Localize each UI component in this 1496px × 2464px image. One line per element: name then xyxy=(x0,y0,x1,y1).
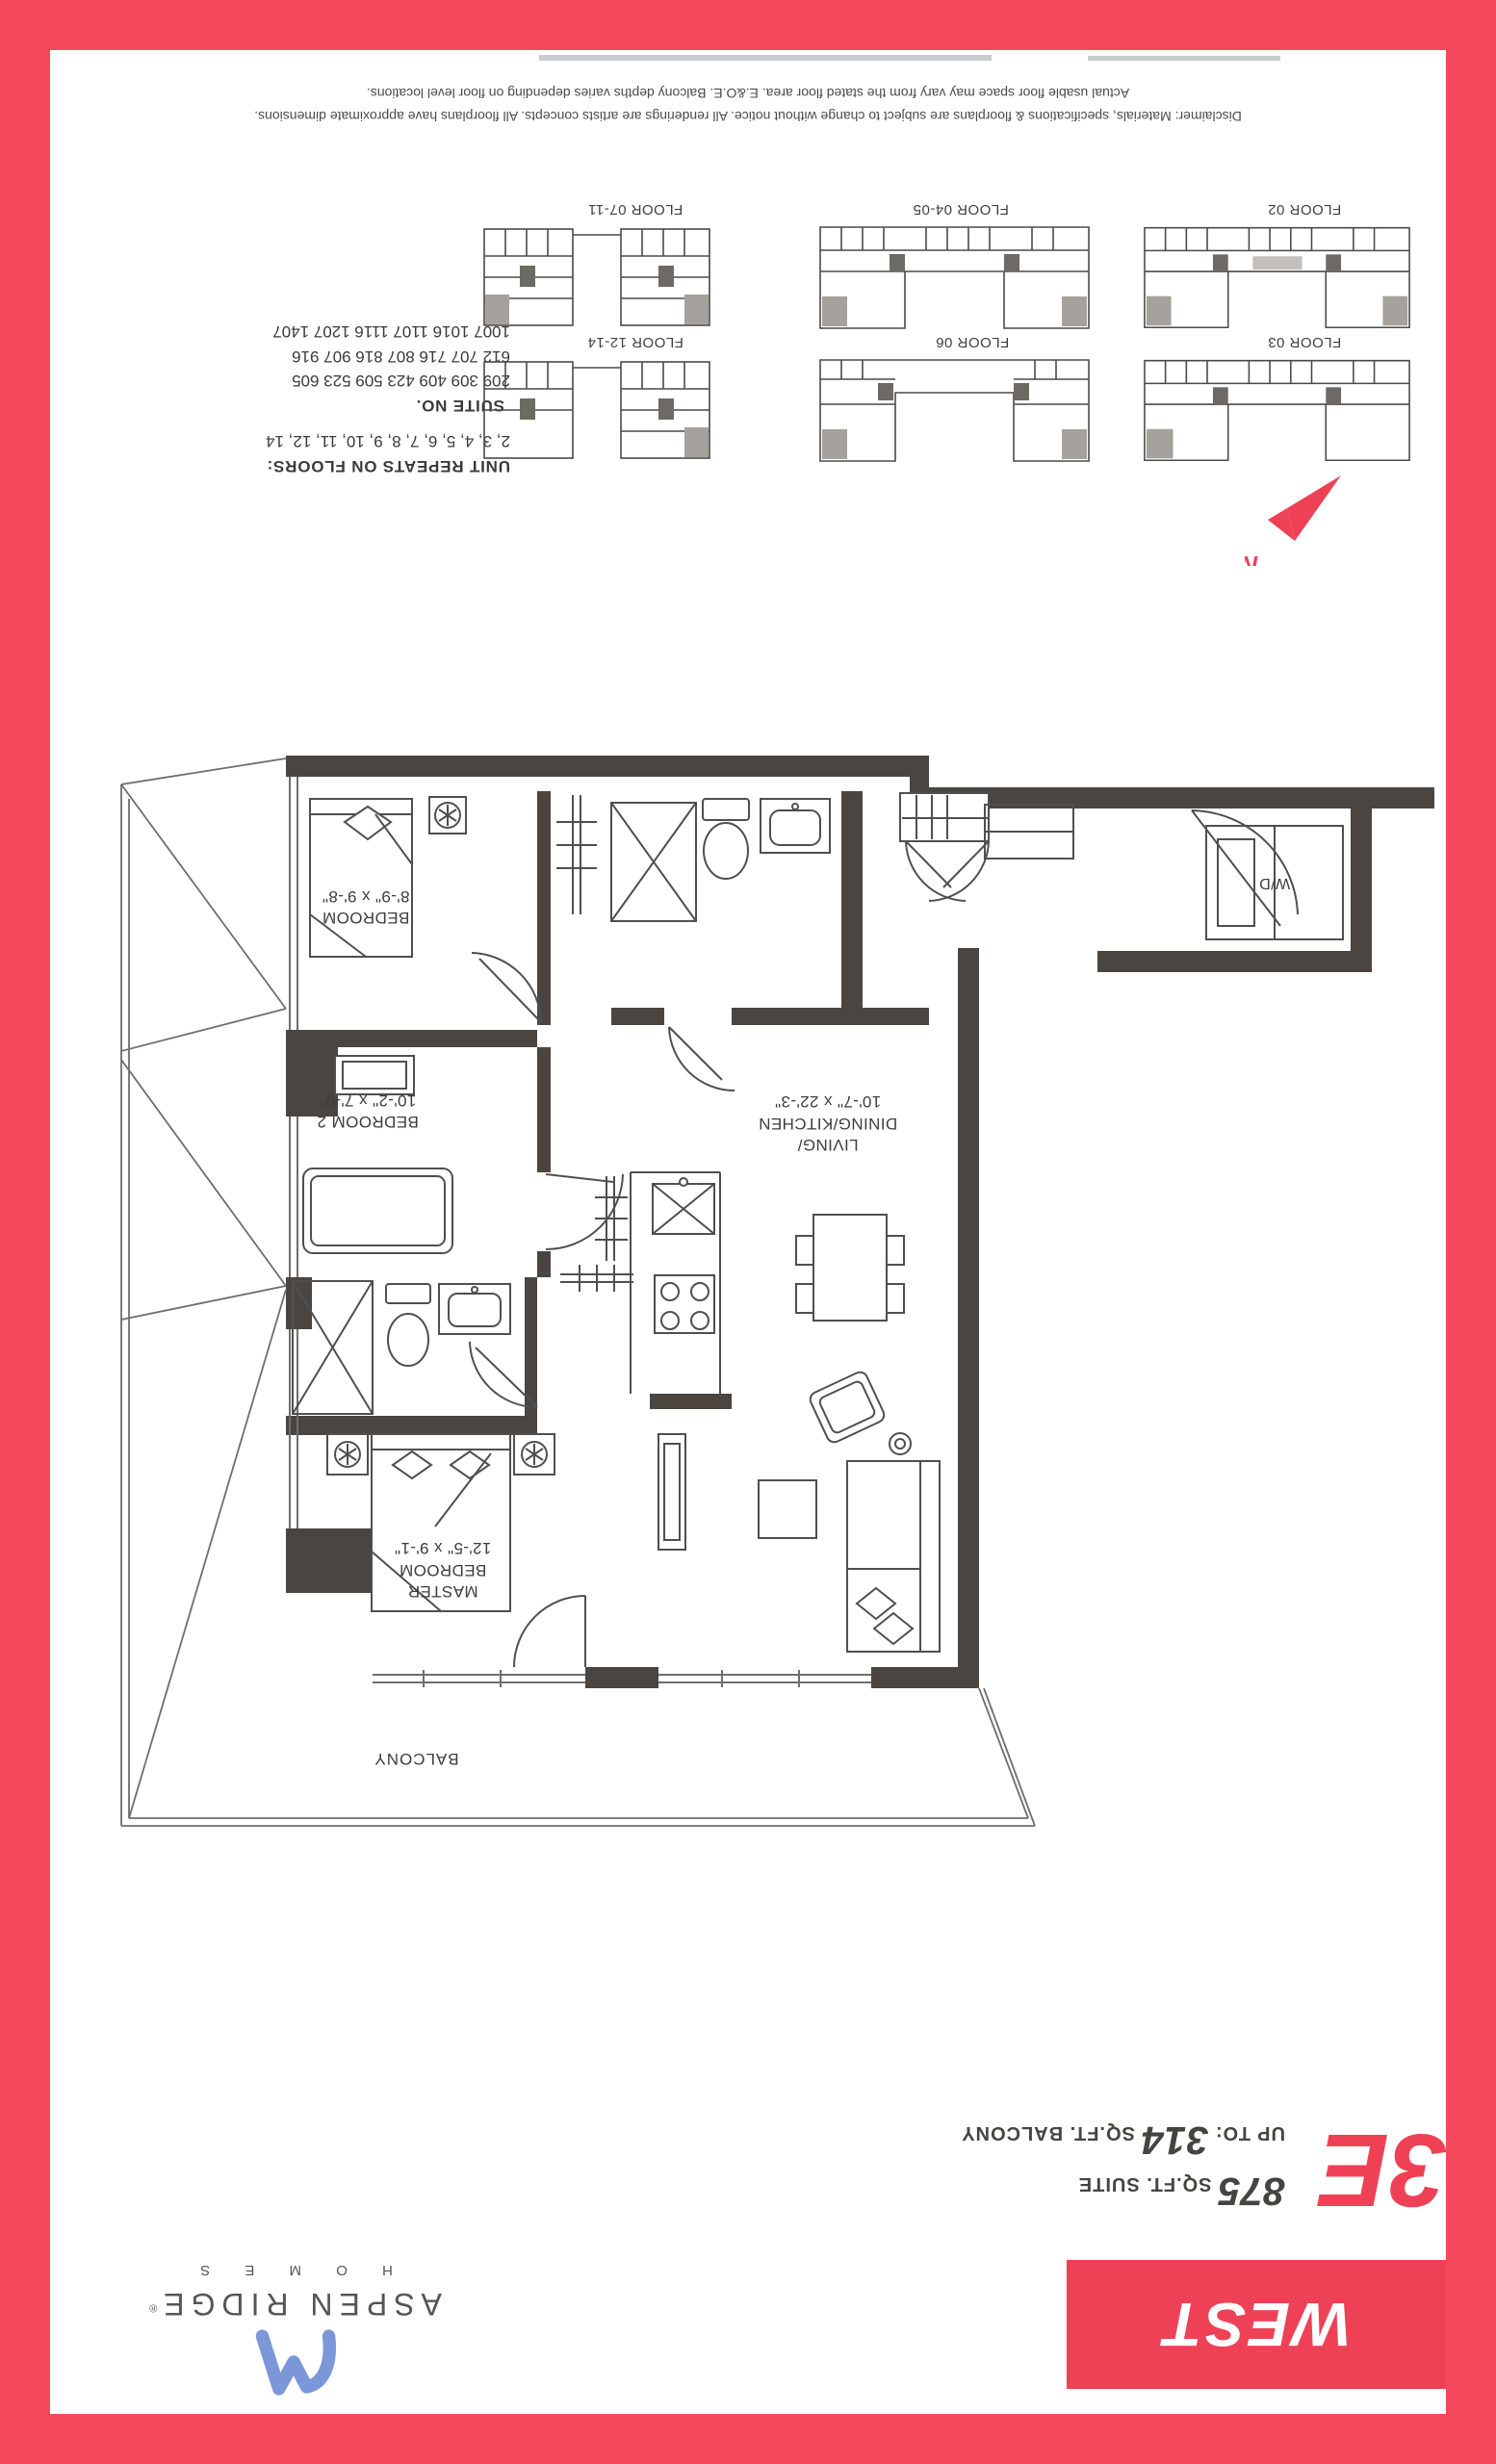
keyplan-floor-06 xyxy=(816,354,1093,465)
label-master-bedroom: MASTER BEDROOM 12'-5" x 9'-1" xyxy=(343,1532,543,1602)
suite-no-heading: SUITE NO. xyxy=(133,394,510,419)
label-bedroom-2: BEDROOM 2 10'-2" x 7'-0" xyxy=(271,1086,464,1132)
aspen-ridge-mark-icon xyxy=(249,2327,342,2397)
frame-right xyxy=(1446,0,1496,2464)
suite-numbers-line: 209 309 409 423 509 523 605 xyxy=(133,369,510,394)
suite-stats: 875 SQ.FT. SUITE UP TO: 314 SQ.FT. BALCO… xyxy=(898,2106,1285,2214)
developer-logo: ASPEN RIDGE® H O M E S xyxy=(108,2223,483,2397)
unit-code: 3E xyxy=(1295,2094,1447,2227)
frame-top xyxy=(0,0,1496,50)
north-letter: N xyxy=(1245,551,1258,566)
keyplan-floor-12-14 xyxy=(481,354,712,465)
unit-repeats-heading: UNIT REPEATS ON FLOORS: xyxy=(133,454,510,479)
label-balcony: BALCONY xyxy=(318,1744,515,1769)
keyplan-label-floor-07-11: FLOOR 07-11 xyxy=(520,194,751,218)
building-name: WEST xyxy=(1162,2289,1352,2360)
keyplan-floor-04-05 xyxy=(816,221,1093,332)
suite-area: 875 SQ.FT. SUITE xyxy=(898,2169,1285,2214)
balcony-area: UP TO: 314 SQ.FT. BALCONY xyxy=(898,2117,1285,2163)
north-arrow: N xyxy=(1245,470,1358,566)
label-living-dining-kitchen: LIVING/ DINING/KITCHEN 10'-7" x 22'-3" xyxy=(728,1086,928,1155)
developer-sub: H O M E S xyxy=(185,2262,406,2278)
developer-name: ASPEN RIDGE® xyxy=(149,2286,442,2322)
label-washer-dryer: W/D xyxy=(1226,868,1323,893)
keyplan-label-floor-04-05: FLOOR 04-05 xyxy=(845,194,1076,218)
suite-numbers-line: 612 707 716 807 816 907 916 xyxy=(133,345,510,370)
frame-left xyxy=(0,0,50,2464)
registered-mark: ® xyxy=(149,2302,157,2314)
disclaimer-text: Disclaimer: Materials, specifications & … xyxy=(190,60,1306,127)
keyplan-floor-07-11 xyxy=(481,221,712,332)
brochure-page: Disclaimer: Materials, specifications & … xyxy=(0,0,1496,2464)
frame-bottom xyxy=(0,2414,1496,2464)
keyplan-label-floor-02: FLOOR 02 xyxy=(1189,194,1420,218)
building-name-box: WEST xyxy=(1067,2260,1446,2389)
disclaimer-line-2: Actual usable floor space may vary from … xyxy=(190,81,1306,104)
keyplan-floor-02 xyxy=(1141,221,1413,332)
keyplan-floor-03 xyxy=(1141,354,1413,465)
unit-repeats-floors: 2, 3, 4, 5, 6, 7, 8, 9, 10, 11, 12, 14 xyxy=(133,429,510,454)
label-bedroom: BEDROOM 8'-9" x 9'-8" xyxy=(270,882,462,928)
disclaimer-line-1: Disclaimer: Materials, specifications & … xyxy=(190,104,1306,127)
suite-info-block: UNIT REPEATS ON FLOORS: 2, 3, 4, 5, 6, 7… xyxy=(133,271,510,478)
suite-numbers-line: 1007 1016 1107 1116 1207 1407 xyxy=(133,320,510,345)
